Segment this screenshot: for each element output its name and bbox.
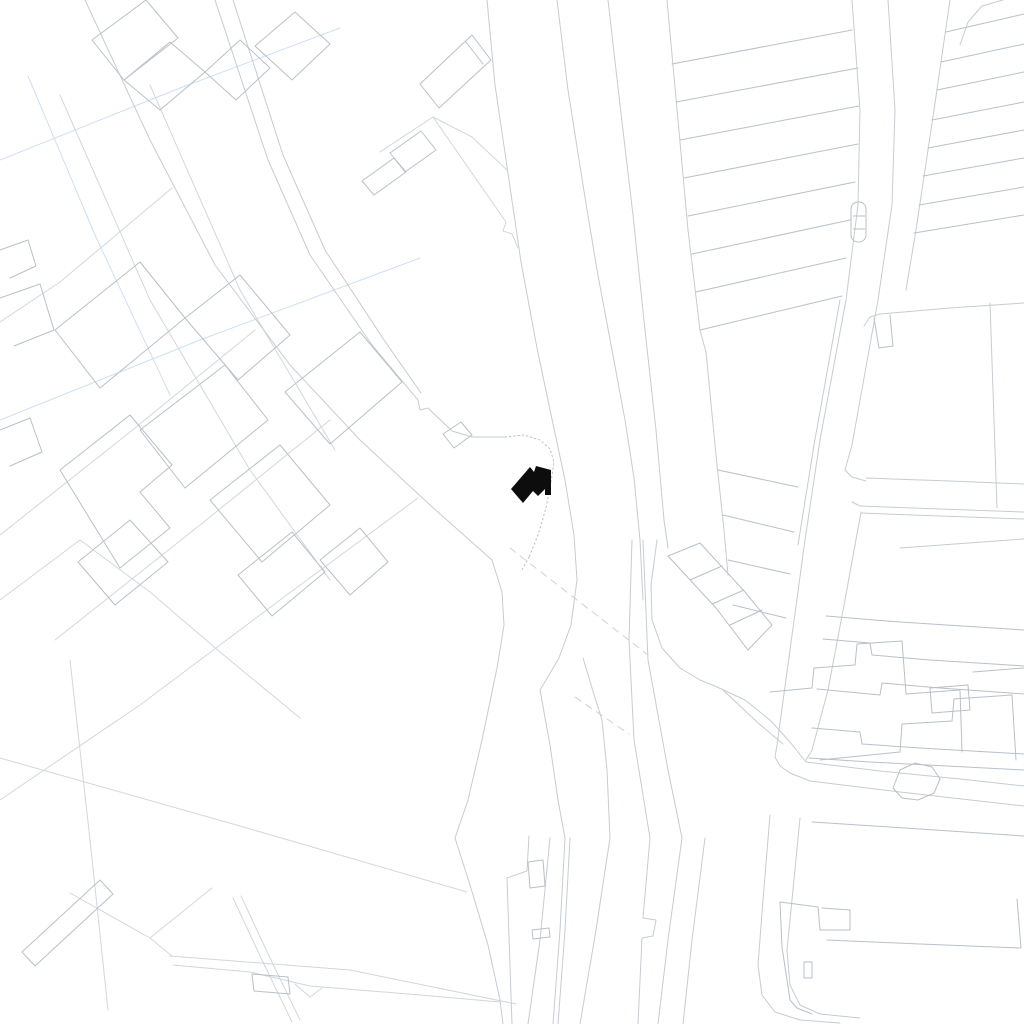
map-line [683,838,705,1024]
map-line [914,215,1024,233]
traffic-island-outline [851,202,866,242]
layer-dashed-road-centerlines [510,548,648,734]
map-line [487,0,577,580]
map-line [28,76,170,395]
map-line [775,757,790,773]
map-line [690,566,722,580]
map-line [0,284,54,346]
building-outline [55,262,185,388]
map-line [680,106,859,140]
layer-parcel-boundaries [0,85,518,1022]
layer-building-outlines [0,0,1024,1014]
map-line [522,557,529,570]
map-line [806,512,861,760]
map-line [507,836,529,1024]
map-line [0,540,150,600]
map-line [629,540,650,838]
building-outline [210,445,330,562]
map-line [748,625,772,650]
map-line [173,965,500,1002]
map-line [798,300,840,545]
map-line [233,898,292,1022]
map-line [1012,695,1016,760]
map-line [928,130,1024,148]
map-line [790,773,1024,806]
map-line [806,762,1024,786]
map-line [688,182,855,216]
building-outline [362,158,406,195]
map-line [812,728,1024,754]
map-line [827,940,1020,948]
map-line [658,838,682,1024]
map-line [866,478,1024,484]
map-line [923,158,1024,176]
map-line [845,470,866,481]
traffic-island [851,202,866,242]
building-outline [185,275,290,380]
map-line [809,758,1024,770]
map-line [540,580,577,690]
map-line [874,315,893,348]
map-line [861,513,1024,519]
map-line [826,616,1024,630]
map-line [717,687,806,762]
map-line [919,187,1024,205]
map-line [0,758,467,892]
map-line [960,0,1003,45]
building-outline [804,962,812,978]
building-outline [238,532,325,616]
map-line [70,893,172,956]
map-line [0,258,420,420]
map-line [1017,899,1021,948]
map-line [0,418,42,466]
building-outline [78,520,168,605]
layer-water-faint-lines [0,28,420,420]
map-line [780,902,782,947]
map-line [540,690,565,838]
map-line [0,28,340,160]
map-line [941,44,1024,62]
building-outline [60,415,172,568]
map-line [723,690,783,744]
map-line [0,498,418,800]
map-line [692,220,850,254]
map-line [575,697,629,734]
map-line [0,188,172,322]
map-line [990,303,997,508]
map-line [700,543,772,625]
building-outline [92,0,178,80]
map-line [0,330,255,535]
map-line [505,435,554,557]
map-line [712,590,744,604]
layer-street-edges [85,0,1024,1024]
building-outline [205,40,270,100]
map-viewport[interactable] [0,0,1024,1024]
map-line [70,660,108,1010]
map-line [170,956,516,1004]
map-line [696,258,846,292]
map-line [900,539,1024,548]
map-line [580,838,610,1024]
map-line [150,888,212,938]
map-line [608,0,668,548]
map-line [672,30,852,64]
map-line [823,639,1024,666]
building-outline [285,332,402,444]
map-line [455,560,504,838]
map-line [528,838,550,1024]
map-line [812,822,1024,836]
map-line [787,818,860,1018]
building-outline [22,880,113,966]
map-line [973,668,1024,672]
map-line [638,838,656,1024]
map-line [643,540,682,838]
map-line [864,303,1024,326]
building-outline [320,528,388,595]
map-line [150,85,335,450]
map-line [583,658,610,838]
map-line [718,470,798,487]
building-outline [124,42,205,110]
building-outline [390,131,436,172]
map-line [676,68,858,102]
map-line [728,560,790,574]
map-line [700,296,842,330]
map-line [215,0,452,431]
map-line [510,548,648,655]
map-line [85,0,492,560]
map-line [60,95,330,580]
map-line [946,14,1024,32]
map-line [782,947,812,1014]
map-line [723,515,794,532]
map-line [233,0,421,393]
map-line [845,0,895,470]
map-line [241,896,300,1020]
map-line [758,815,840,1023]
site-building-footprint[interactable] [511,466,551,503]
building-outline [420,35,491,108]
building-outline [893,763,940,800]
map-line [668,556,748,650]
map-line [553,838,565,1024]
map-line [706,352,728,575]
map-line [730,610,762,625]
map-line [380,117,507,170]
map-line [852,502,1024,512]
map-line [668,543,700,556]
map-line [433,117,518,248]
map-line [932,102,1024,120]
map-line [960,690,962,752]
map-line [820,695,1012,760]
map-line [937,72,1024,90]
site-map-canvas[interactable] [0,0,1024,1024]
map-line [667,0,706,352]
map-line [651,540,717,687]
building-outline [528,860,545,888]
map-line [452,431,505,437]
map-line [0,240,36,278]
map-line [684,144,858,178]
